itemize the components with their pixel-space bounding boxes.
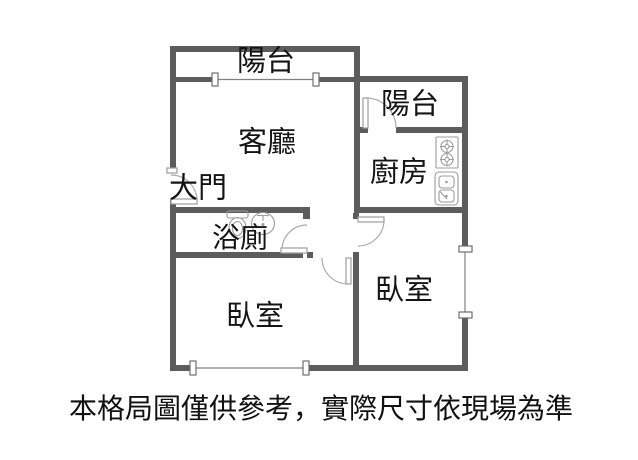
room-label-living-room: 客廳: [238, 129, 296, 158]
bathroom-door: [281, 225, 307, 253]
room-label-kitchen: 廚房: [370, 159, 428, 188]
room-label-bedroom-bottom: 臥室: [226, 303, 284, 332]
wall-bottom-right-seg: [309, 365, 468, 371]
room-label-bathroom: 浴廁: [212, 224, 268, 252]
wall-bedrooms-divider: [353, 252, 359, 371]
sink-icon: [435, 172, 458, 205]
wall-balcony-right-bottom: [396, 127, 468, 133]
wall-right-upper: [462, 76, 468, 246]
window-bedroom-bottom: [190, 361, 309, 375]
wall-left-lower: [170, 199, 176, 371]
wall-bathroom-door-stub: [303, 207, 310, 219]
bedroom-bottom-door: [322, 258, 351, 284]
wall-bathroom-top: [170, 207, 310, 213]
wall-bottom-left-seg: [170, 365, 190, 371]
wall-balcony-right-top: [354, 76, 468, 82]
wall-left-upper: [170, 46, 176, 173]
wall-bedroom-door-cap: [307, 252, 313, 258]
stove-icon: [436, 137, 458, 168]
room-label-bedroom-right: 臥室: [375, 277, 433, 306]
wall-right-lower: [462, 318, 468, 371]
room-label-entrance: 大門: [169, 175, 227, 204]
disclaimer-caption: 本格局圖僅供參考，實際尺寸依現場為準: [69, 387, 573, 427]
wall-living-kitchen-divider: [354, 46, 360, 213]
room-label-balcony-right: 陽台: [381, 91, 439, 120]
wall-kitchen-bottom: [354, 207, 468, 213]
room-label-balcony-top: 陽台: [237, 48, 295, 77]
wall-balcony-top-right-seg: [319, 77, 360, 82]
bedroom-right-door: [358, 217, 384, 246]
floor-plan: 陽台 陽台 客廳 廚房 大門 浴廁 臥室 臥室 本格局圖僅供參考，實際尺寸依現場…: [0, 0, 638, 460]
window-bedroom-right: [459, 246, 472, 318]
wall-balcony-top-left-seg: [170, 77, 212, 82]
